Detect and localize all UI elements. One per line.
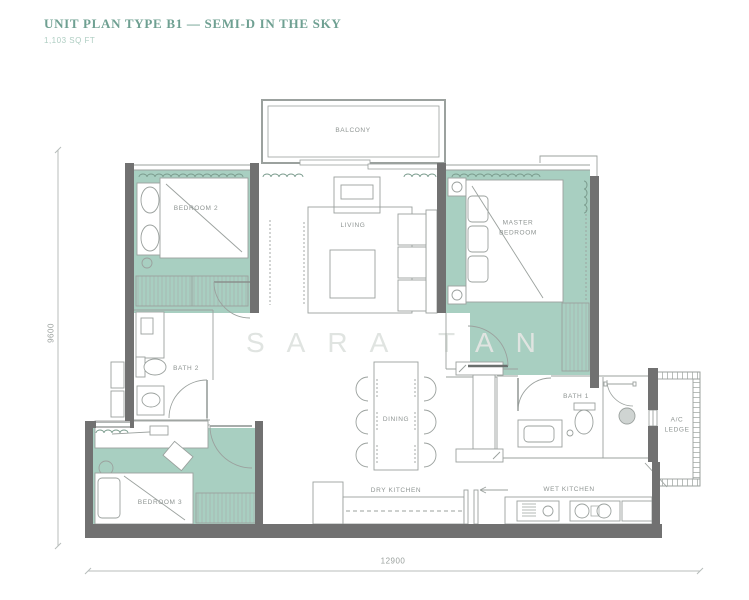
floor-plan-page: UNIT PLAN TYPE B1 — SEMI-D IN THE SKY 1,… [0,0,749,600]
height-dimension: 9600 [47,323,56,343]
bath2-label: BATH 2 [173,364,199,374]
width-dimension: 12900 [381,557,406,566]
bedroom2-furniture [136,178,248,306]
floor-plan-drawing: SARA TAN [0,0,749,600]
living-furniture [270,177,437,313]
wet-kitchen-label: WET KITCHEN [543,485,594,495]
master-bedroom-label: MASTER BEDROOM [490,218,546,238]
bath1-fixtures [518,380,636,447]
balcony-label: BALCONY [335,126,370,136]
dining-label: DINING [383,415,409,425]
watermark-text: SARA TAN [246,327,558,358]
bedroom2-label: BEDROOM 2 [173,204,219,214]
bath2-fixtures [111,312,166,417]
bath1-label: BATH 1 [563,392,589,402]
living-label: LIVING [341,221,366,231]
bedroom3-window [96,422,130,428]
bedroom3-label: BEDROOM 3 [137,498,183,508]
dry-kitchen-label: DRY KITCHEN [371,486,421,496]
ac-ledge-label: A/C LEDGE [660,415,694,435]
kitchen-counters [313,463,667,524]
